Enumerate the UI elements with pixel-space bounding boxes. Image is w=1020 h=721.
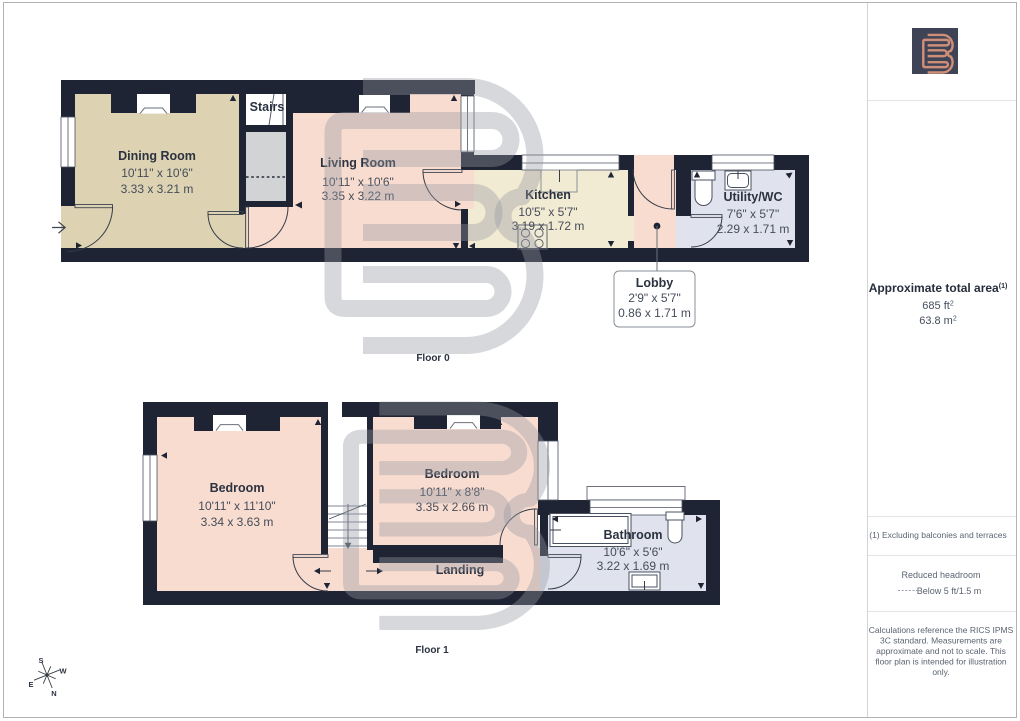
svg-text:Bedroom: Bedroom (210, 481, 265, 495)
svg-text:7'6" x 5'7": 7'6" x 5'7" (727, 207, 779, 221)
svg-text:Stairs: Stairs (250, 100, 285, 114)
svg-text:3.19 x 1.72 m: 3.19 x 1.72 m (512, 219, 585, 233)
svg-text:10'11" x 8'8": 10'11" x 8'8" (420, 485, 485, 499)
svg-text:Floor 0: Floor 0 (416, 353, 450, 364)
svg-text:Bedroom: Bedroom (425, 467, 480, 481)
svg-text:2'9" x 5'7": 2'9" x 5'7" (628, 291, 680, 305)
svg-text:Bathroom: Bathroom (603, 528, 662, 542)
svg-text:10'11" x 10'6": 10'11" x 10'6" (322, 175, 394, 189)
svg-text:Dining Room: Dining Room (118, 149, 196, 163)
svg-text:Utility/WC: Utility/WC (723, 190, 782, 204)
svg-text:10'6" x 5'6": 10'6" x 5'6" (603, 545, 662, 559)
svg-text:3.35 x 2.66 m: 3.35 x 2.66 m (416, 500, 489, 514)
svg-text:10'11" x 11'10": 10'11" x 11'10" (198, 499, 275, 513)
svg-text:10'5" x 5'7": 10'5" x 5'7" (518, 205, 577, 219)
svg-text:3.34 x 3.63 m: 3.34 x 3.63 m (201, 515, 274, 529)
svg-text:2.29 x 1.71 m: 2.29 x 1.71 m (717, 222, 790, 236)
svg-text:Landing: Landing (436, 563, 485, 577)
svg-text:3.35 x 3.22 m: 3.35 x 3.22 m (322, 189, 395, 203)
svg-text:Kitchen: Kitchen (525, 188, 571, 202)
svg-text:Lobby: Lobby (636, 276, 674, 290)
svg-text:Living Room: Living Room (320, 156, 396, 170)
svg-text:Floor 1: Floor 1 (415, 645, 449, 656)
svg-text:0.86 x 1.71 m: 0.86 x 1.71 m (618, 306, 691, 320)
svg-text:3.33 x 3.21 m: 3.33 x 3.21 m (121, 182, 194, 196)
svg-text:3.22 x 1.69 m: 3.22 x 1.69 m (597, 559, 670, 573)
svg-text:10'11" x 10'6": 10'11" x 10'6" (121, 166, 193, 180)
